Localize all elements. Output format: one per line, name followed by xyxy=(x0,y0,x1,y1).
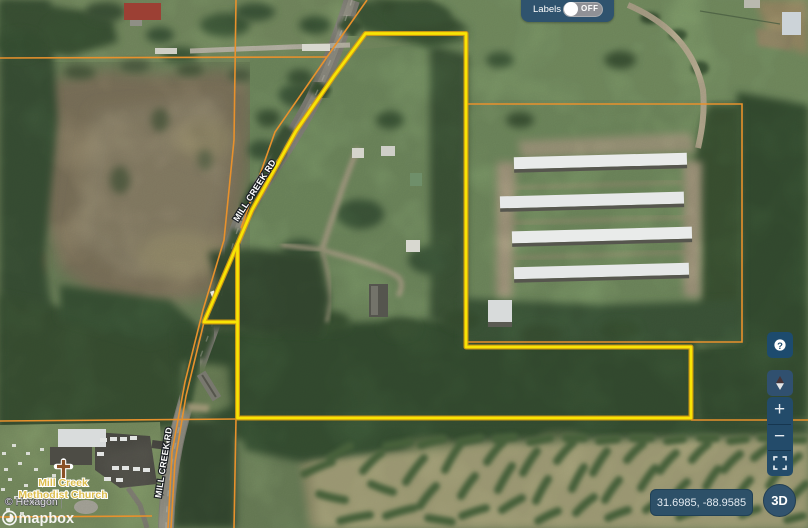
svg-text:Mill Creek: Mill Creek xyxy=(38,477,88,489)
svg-text:|: | xyxy=(60,497,63,509)
svg-text:mapbox: mapbox xyxy=(19,511,75,527)
svg-text:?: ? xyxy=(777,340,783,351)
svg-text:© Hexagon: © Hexagon xyxy=(5,496,58,508)
